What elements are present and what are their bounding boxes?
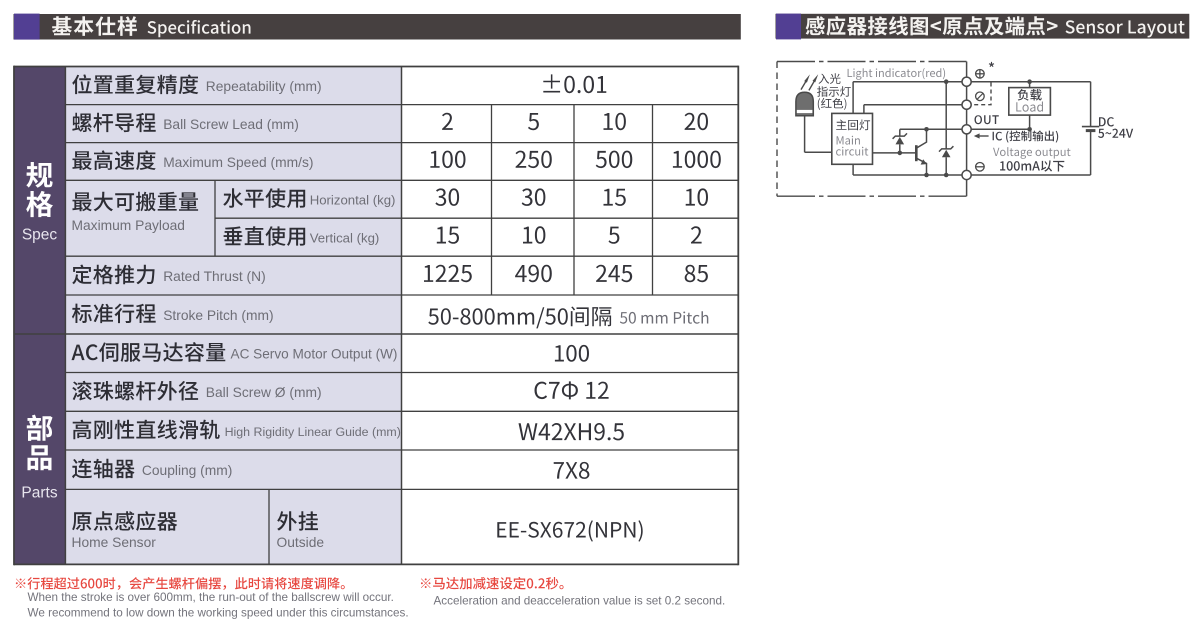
svg-text:Maximum Payload: Maximum Payload — [72, 218, 185, 233]
svg-text:Ball Screw Lead (mm): Ball Screw Lead (mm) — [163, 117, 299, 132]
svg-text:Stroke Pitch (mm): Stroke Pitch (mm) — [163, 308, 273, 323]
svg-text:When the stroke is over 600mm,: When the stroke is over 600mm, the run-o… — [28, 591, 394, 604]
svg-text:Spec: Spec — [22, 227, 58, 244]
svg-text:Parts: Parts — [21, 485, 57, 502]
svg-text:Vertical (kg): Vertical (kg) — [310, 231, 380, 246]
svg-text:We recommend to low down the w: We recommend to low down the working spe… — [28, 606, 409, 619]
svg-text:High Rigidity Linear Guide (mm: High Rigidity Linear Guide (mm) — [225, 425, 401, 439]
svg-text:Rated Thrust (N): Rated Thrust (N) — [163, 269, 266, 284]
svg-text:Maximum Speed (mm/s): Maximum Speed (mm/s) — [163, 155, 313, 170]
svg-text:Coupling (mm): Coupling (mm) — [142, 463, 232, 478]
svg-text:Ball Screw Ø (mm): Ball Screw Ø (mm) — [206, 385, 322, 400]
svg-text:Outside: Outside — [277, 535, 325, 550]
svg-text:AC Servo Motor Output (W): AC Servo Motor Output (W) — [231, 347, 398, 362]
svg-text:Repeatability (mm): Repeatability (mm) — [206, 79, 322, 94]
svg-text:Acceleration and deacceleratio: Acceleration and deacceleration value is… — [434, 594, 726, 607]
svg-text:Home Sensor: Home Sensor — [72, 535, 157, 550]
svg-text:Horizontal (kg): Horizontal (kg) — [310, 193, 396, 208]
